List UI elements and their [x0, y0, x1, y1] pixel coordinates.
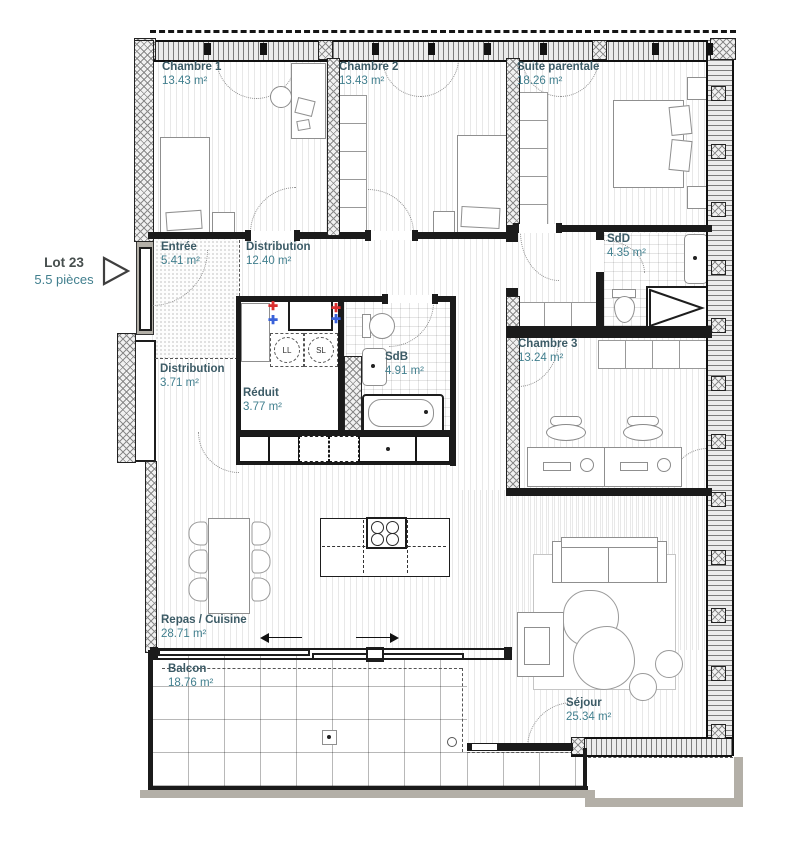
- room-label-reduit: Réduit 3.77 m²: [243, 386, 282, 414]
- window-joint-east: [711, 202, 726, 217]
- bathtub-drain: [424, 410, 428, 414]
- kitchen-counter: [239, 436, 450, 462]
- window-post: [540, 43, 547, 55]
- closet-icon: [517, 302, 599, 329]
- door-opening-sdd: [596, 240, 604, 272]
- door-jamb: [513, 223, 519, 233]
- entree-distribution2-separator: [155, 358, 238, 359]
- keyboard-icon: [543, 462, 571, 471]
- room-label-suite-parentale: Suite parentale 18.26 m²: [517, 60, 599, 88]
- burner-icon: [371, 533, 384, 546]
- room-label-distribution-1: Distribution 12.40 m²: [246, 240, 311, 268]
- door-opening-chambre1: [250, 231, 295, 240]
- counter-bottom-line: [236, 462, 453, 465]
- lot-label: Lot 23 5.5 pièces: [18, 254, 110, 288]
- window-post: [706, 43, 713, 55]
- window-post: [428, 43, 435, 55]
- wall-corner-ne: [710, 38, 736, 60]
- pillow-icon: [165, 210, 202, 231]
- room-area: 18.26 m²: [517, 74, 599, 88]
- wardrobe-icon: [516, 92, 548, 233]
- dryer-label: SL: [316, 346, 326, 355]
- dining-chair-icon: [189, 522, 208, 546]
- room-area: 28.71 m²: [161, 627, 247, 641]
- pillow-icon: [669, 105, 693, 136]
- shower-icon: [646, 286, 708, 330]
- window-band-north: [148, 40, 734, 62]
- floor-balcon-right: [467, 752, 583, 786]
- duct-shaft: [344, 356, 362, 434]
- room-area: 25.34 m²: [566, 710, 611, 724]
- wall-reduit-south: [236, 430, 456, 436]
- room-label-balcon: Balcon 18.76 m²: [168, 662, 213, 690]
- balcon-drain-dot: [327, 735, 331, 739]
- shower-triangle: [648, 288, 706, 328]
- wall-balcon-east-stub: [583, 748, 587, 790]
- room-name: Réduit: [243, 386, 282, 400]
- door-jamb: [432, 294, 438, 304]
- lot-number: Lot 23: [18, 254, 110, 271]
- room-area: 13.43 m²: [339, 74, 398, 88]
- room-area: 12.40 m²: [246, 254, 311, 268]
- room-area: 4.91 m²: [385, 364, 424, 378]
- office-chair-icon: [546, 424, 586, 441]
- wall-west-upper: [134, 40, 154, 242]
- water-manifold: [288, 298, 333, 331]
- room-area: 3.71 m²: [160, 376, 225, 390]
- balcon-inner-dashed-right: [462, 668, 463, 752]
- window-joint-east: [711, 318, 726, 333]
- kitchen-cabinet: [416, 436, 450, 462]
- room-label-repas-cuisine: Repas / Cuisine 28.71 m²: [161, 613, 247, 641]
- sliding-jamb-right: [504, 647, 512, 660]
- room-label-chambre3: Chambre 3 13.24 m²: [518, 337, 577, 365]
- room-label-sdb: SdB 4.91 m²: [385, 350, 424, 378]
- window-joint-east: [711, 550, 726, 565]
- beanbag-icon: [573, 626, 635, 690]
- window-post: [484, 43, 491, 55]
- door-pivot: [447, 737, 457, 747]
- room-label-chambre1: Chambre 1 13.43 m²: [162, 60, 221, 88]
- wall-chambre3-south: [506, 488, 712, 496]
- room-area: 4.35 m²: [607, 246, 646, 260]
- door-leaf-balcony: [497, 744, 527, 750]
- room-name: Repas / Cuisine: [161, 613, 247, 627]
- slide-arrow-right-head: [390, 633, 399, 643]
- window-joint-north-1: [318, 40, 333, 60]
- wardrobe-icon: [337, 95, 367, 236]
- room-label-chambre2: Chambre 2 13.43 m²: [339, 60, 398, 88]
- room-area: 13.43 m²: [162, 74, 221, 88]
- sliding-door-rail-top: [150, 648, 512, 650]
- entry-door: [139, 247, 152, 331]
- slide-arrow-left-line: [268, 637, 302, 638]
- door-jamb: [412, 230, 418, 241]
- window-joint-east: [711, 260, 726, 275]
- room-label-distribution-2: Distribution 3.71 m²: [160, 362, 225, 390]
- washer-label: LL: [283, 346, 292, 355]
- office-chair-icon: [623, 424, 663, 441]
- wall-tech-west: [236, 296, 241, 436]
- cabinet-icon: [241, 303, 270, 362]
- washer-box: LL: [270, 333, 304, 367]
- window-joint-east: [711, 492, 726, 507]
- slide-arrow-right-line: [356, 637, 390, 638]
- dining-chair-icon: [189, 550, 208, 574]
- room-name: Distribution: [246, 240, 311, 254]
- window-post: [652, 43, 659, 55]
- window-joint-east: [711, 86, 726, 101]
- room-name: Chambre 2: [339, 60, 398, 74]
- slide-arrow-left-head: [260, 633, 269, 643]
- room-name: Chambre 3: [518, 337, 577, 351]
- nightstand-icon: [433, 211, 455, 233]
- pillow-icon: [668, 139, 692, 172]
- dining-table-icon: [208, 518, 250, 614]
- room-area: 13.24 m²: [518, 351, 577, 365]
- window-post: [260, 43, 267, 55]
- desk-lamp-icon: [657, 458, 671, 472]
- window-band-south: [571, 737, 732, 757]
- roof-edge-dashed: [150, 30, 736, 33]
- slab-edge-right-h: [585, 798, 743, 807]
- pouf-icon: [629, 673, 657, 701]
- balcon-inner-dashed-bottom: [467, 752, 583, 753]
- window-joint-east: [711, 434, 726, 449]
- door-opening-sdb: [387, 295, 433, 303]
- sliding-door-rail-bottom: [150, 658, 512, 660]
- room-area: 18.76 m²: [168, 676, 213, 690]
- room-label-sejour: Séjour 25.34 m²: [566, 696, 611, 724]
- entree-distribution-separator: [239, 240, 240, 296]
- door-jamb: [365, 230, 371, 241]
- door-opening-chambre2: [370, 231, 413, 240]
- desk-lamp-icon: [580, 458, 594, 472]
- kitchen-cabinet: [239, 436, 269, 462]
- oven: [329, 436, 359, 462]
- door-jamb: [556, 223, 562, 233]
- window-joint-north-2: [592, 40, 607, 60]
- room-area: 5.41 m²: [161, 254, 200, 268]
- pouf-icon: [655, 650, 683, 678]
- wall-west-lower: [145, 461, 157, 653]
- window-west-tall: [134, 340, 156, 462]
- window-joint-east: [711, 608, 726, 623]
- room-area: 3.77 m²: [243, 400, 282, 414]
- room-name: Séjour: [566, 696, 611, 710]
- entry-arrow-icon: [100, 255, 132, 287]
- sofa-icon: [552, 537, 666, 584]
- cold-water-icon: ✚: [331, 313, 341, 325]
- door-opening-suite: [519, 224, 557, 233]
- kitchen-cabinet: [269, 436, 299, 462]
- wall-balcon-west: [148, 650, 153, 790]
- armchair-seat: [524, 627, 550, 665]
- wall-balcon-south: [148, 786, 588, 790]
- toilet-bowl-icon: [369, 313, 395, 339]
- washing-machine-icon: LL: [274, 337, 300, 363]
- balcony-edge-dashed: [583, 757, 733, 758]
- room-name: Suite parentale: [517, 60, 599, 74]
- sliding-panel-left: [158, 649, 310, 656]
- desk-chair-icon: [270, 86, 292, 108]
- dryer-box: SL: [304, 333, 338, 367]
- counter-west-line: [236, 436, 239, 464]
- kitchen-sink: [359, 436, 416, 462]
- washbasin-drain: [371, 364, 375, 368]
- hot-water-icon: ✚: [268, 300, 278, 312]
- window-joint-east: [711, 666, 726, 681]
- washbasin-drain: [693, 256, 697, 260]
- room-name: Balcon: [168, 662, 213, 676]
- window-joint-east: [711, 724, 726, 739]
- keyboard-icon: [620, 462, 648, 471]
- closet-icon: [598, 340, 710, 369]
- window-post: [372, 43, 379, 55]
- floor-plan: ✚ ✚ ✚ ✚ LL SL: [0, 0, 800, 852]
- balcony-slab-edge: [140, 790, 595, 798]
- window-joint-east: [711, 144, 726, 159]
- sofa-cushion: [608, 547, 658, 583]
- pillow-icon: [460, 206, 500, 229]
- window-post: [204, 43, 211, 55]
- dishwasher: [299, 436, 329, 462]
- dining-chair-icon: [189, 578, 208, 602]
- lot-size: 5.5 pièces: [18, 271, 110, 288]
- window-joint-east: [711, 376, 726, 391]
- door-jamb: [382, 294, 388, 304]
- room-label-entree: Entrée 5.41 m²: [161, 240, 200, 268]
- sofa-cushion: [561, 547, 611, 583]
- burner-icon: [386, 533, 399, 546]
- room-name: Entrée: [161, 240, 200, 254]
- room-name: SdB: [385, 350, 424, 364]
- door-jamb: [506, 288, 518, 296]
- wall-west-mid: [117, 333, 136, 463]
- dryer-icon: SL: [308, 337, 334, 363]
- wall-tech-east: [450, 296, 456, 466]
- room-label-sdd: SdD 4.35 m²: [607, 232, 646, 260]
- room-name: SdD: [607, 232, 646, 246]
- room-name: Chambre 1: [162, 60, 221, 74]
- sliding-jamb-left: [150, 647, 158, 660]
- room-name: Distribution: [160, 362, 225, 376]
- cold-water-icon: ✚: [268, 314, 278, 326]
